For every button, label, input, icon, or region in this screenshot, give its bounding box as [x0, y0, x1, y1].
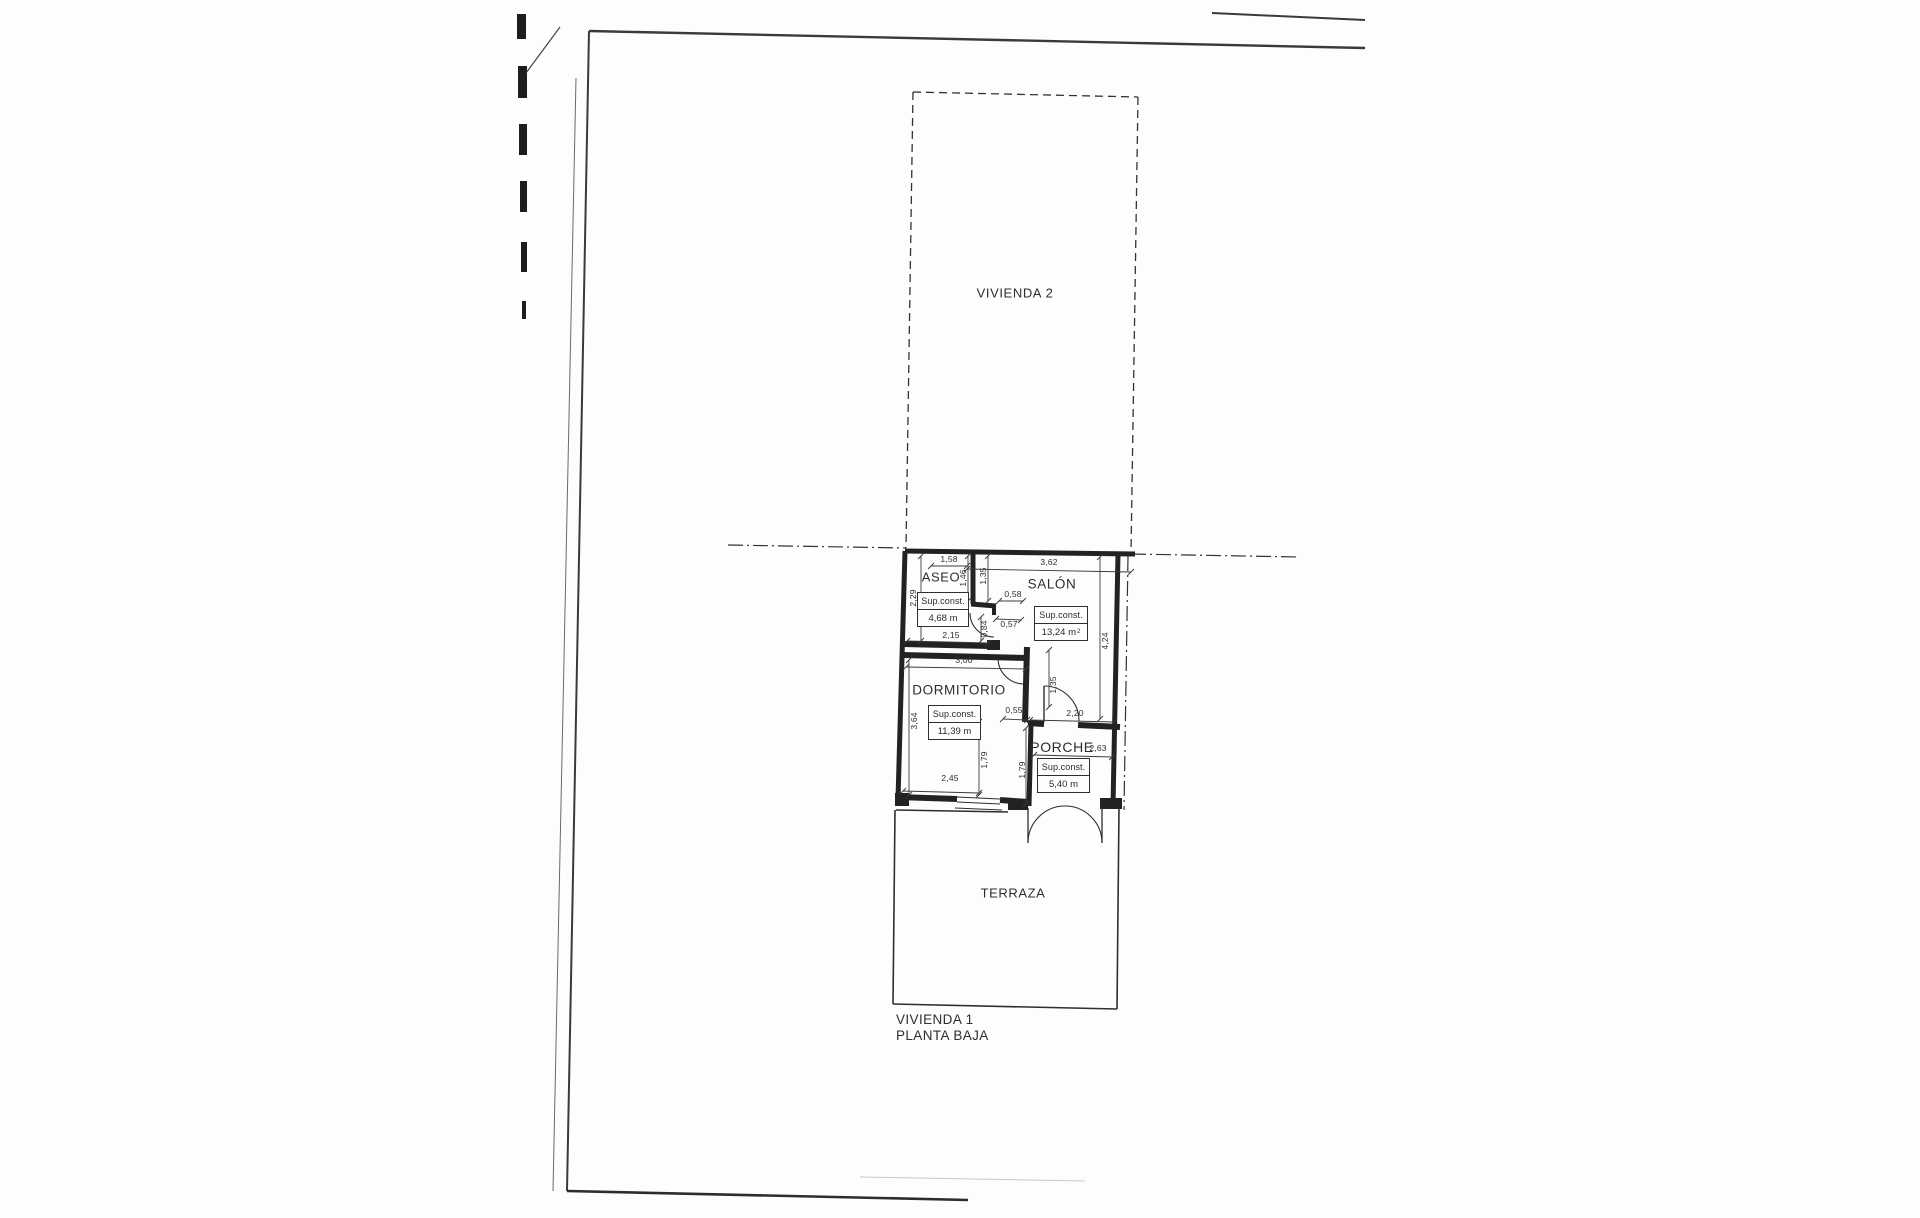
- window-and-terraza: [893, 797, 1119, 1009]
- salon-area-value: 13,24 m: [1042, 627, 1076, 638]
- salon-area-exponent: 2: [1077, 629, 1080, 635]
- supbox-salon: Sup.const. 13,24 m2: [1034, 606, 1088, 641]
- dim-dormitorio-height: 3,64: [909, 712, 919, 729]
- dim-aseo-width: 1,58: [940, 554, 957, 564]
- supbox-aseo-area: 4,68 m: [918, 610, 968, 626]
- dim-salon-width: 3,62: [1040, 557, 1057, 567]
- dim-aseo-partition-b: 1,35: [978, 567, 988, 584]
- dim-aseo-inner-width: 2,15: [942, 630, 959, 640]
- supbox-porche-label: Sup.const.: [1038, 759, 1089, 776]
- dim-porche-wall-b: 1,79: [1017, 761, 1027, 778]
- footer-floor-label: PLANTA BAJA: [896, 1028, 989, 1043]
- supbox-aseo: Sup.const. 4,68 m: [917, 592, 969, 627]
- supbox-dormitorio-label: Sup.const.: [929, 706, 980, 723]
- room-label-dormitorio: DORMITORIO: [912, 683, 1006, 698]
- supbox-aseo-label: Sup.const.: [918, 593, 968, 610]
- dim-aseo-partition-a: 1,46: [958, 569, 968, 586]
- dim-dormitorio-wall-a: 1,79: [979, 751, 989, 768]
- supbox-salon-label: Sup.const.: [1035, 607, 1087, 624]
- dim-dormitorio-inner-width: 2,45: [941, 773, 958, 783]
- scanned-floorplan-page: VIVIENDA 2 ASEO SALÓN DORMITORIO PORCHE …: [0, 0, 1920, 1218]
- supbox-porche: Sup.const. 5,40 m: [1037, 758, 1090, 793]
- dim-dormitorio-width: 3,00: [955, 655, 972, 665]
- supbox-porche-area: 5,40 m: [1038, 776, 1089, 792]
- binding-dash-marks: [517, 14, 527, 319]
- dim-hall-jog-top: 0,58: [1004, 589, 1021, 599]
- supbox-dormitorio-area: 11,39 m: [929, 723, 980, 739]
- crease-line: [526, 27, 560, 73]
- property-line: [728, 545, 1300, 810]
- dim-porche-width: 2,63: [1089, 743, 1106, 753]
- room-label-aseo: ASEO: [922, 570, 961, 585]
- room-label-salon: SALÓN: [1028, 577, 1077, 592]
- room-label-terraza: TERRAZA: [981, 886, 1046, 901]
- supbox-salon-area: 13,24 m2: [1035, 624, 1087, 640]
- supbox-dormitorio: Sup.const. 11,39 m: [928, 705, 981, 740]
- footer-unit-label: VIVIENDA 1: [896, 1012, 974, 1027]
- dim-hall-jog-bottom: 0,57: [1000, 619, 1017, 629]
- dim-salon-height: 4,24: [1100, 632, 1110, 649]
- dim-aseo-door: 0,84: [979, 620, 989, 637]
- room-label-vivienda2: VIVIENDA 2: [977, 286, 1054, 301]
- room-label-porche: PORCHE: [1030, 739, 1094, 755]
- vivienda2-dashed-outline: [906, 92, 1138, 553]
- dim-porche-opening: 2,20: [1066, 708, 1083, 718]
- dim-salon-door: 1,35: [1048, 676, 1058, 693]
- dim-aseo-height: 2,29: [908, 589, 918, 606]
- dim-hall-stub: 0,55: [1005, 705, 1022, 715]
